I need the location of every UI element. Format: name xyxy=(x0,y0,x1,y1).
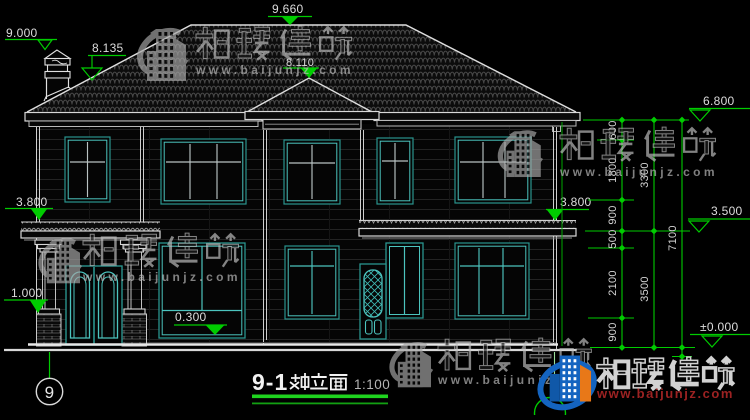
svg-text:3.500: 3.500 xyxy=(711,204,743,218)
svg-text:3.800: 3.800 xyxy=(16,195,48,209)
svg-text:900: 900 xyxy=(607,322,619,341)
svg-text:3500: 3500 xyxy=(639,276,651,302)
svg-text:8.135: 8.135 xyxy=(92,41,124,55)
svg-text:3.800: 3.800 xyxy=(560,195,592,209)
svg-text:www.baijunjz.com: www.baijunjz.com xyxy=(195,63,354,77)
svg-text:0.300: 0.300 xyxy=(175,310,207,324)
svg-text:2100: 2100 xyxy=(607,270,619,296)
svg-text:6.800: 6.800 xyxy=(703,94,735,108)
svg-text:7100: 7100 xyxy=(667,225,679,251)
svg-text:1.000: 1.000 xyxy=(11,286,43,300)
svg-text:www.baijunjz.com: www.baijunjz.com xyxy=(559,165,718,179)
svg-text:9: 9 xyxy=(45,383,55,402)
svg-text:900: 900 xyxy=(607,205,619,224)
svg-text:9.000: 9.000 xyxy=(6,26,38,40)
svg-text:9-1: 9-1 xyxy=(252,369,288,395)
svg-text:500: 500 xyxy=(607,229,619,248)
svg-text:www.baijunjz.com: www.baijunjz.com xyxy=(82,270,241,284)
svg-text:1:100: 1:100 xyxy=(354,377,390,392)
svg-text:±0.000: ±0.000 xyxy=(700,320,738,334)
svg-text:www.baijunjz.com: www.baijunjz.com xyxy=(596,386,734,401)
svg-text:9.660: 9.660 xyxy=(272,2,304,16)
